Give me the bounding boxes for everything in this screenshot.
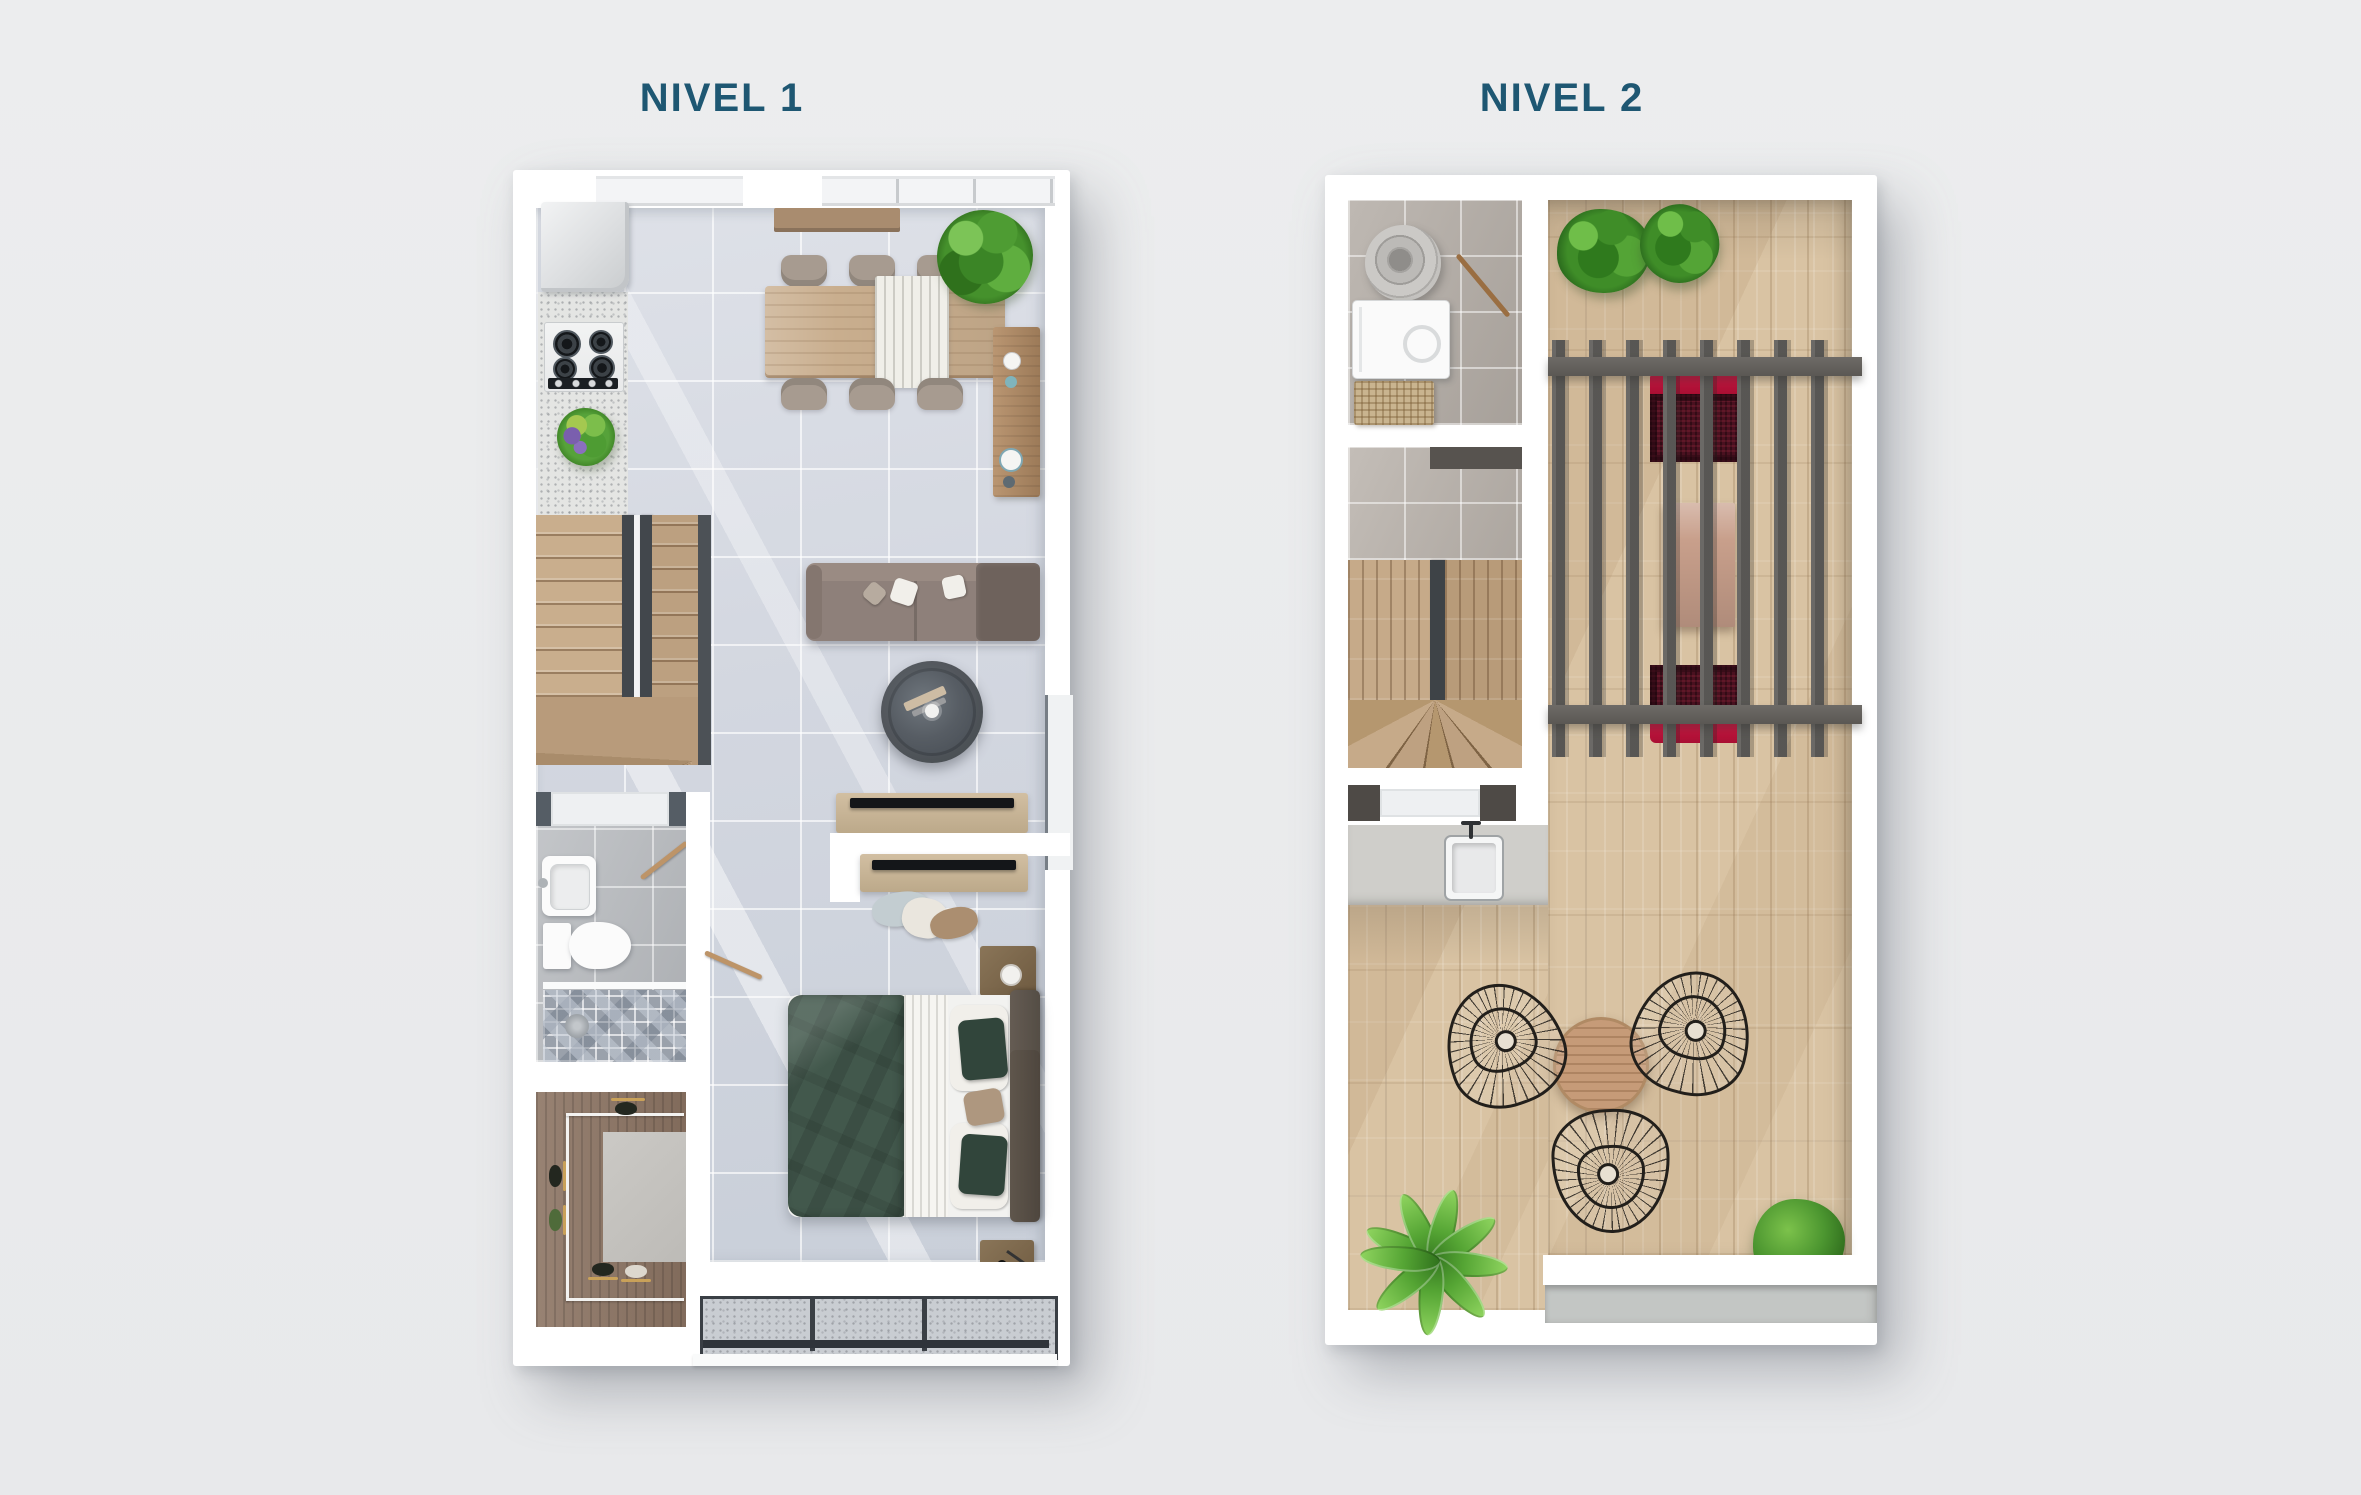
pergola-beam xyxy=(1548,357,1862,376)
bar-sink xyxy=(1444,835,1504,901)
faucet-icon xyxy=(1469,823,1473,839)
closet-rail xyxy=(566,1298,684,1301)
sliding-door-track xyxy=(703,1340,1049,1348)
kitchen-plant xyxy=(557,408,615,466)
level1-floorplan xyxy=(513,170,1070,1366)
clothes-icon xyxy=(546,1161,566,1191)
closet-floor xyxy=(603,1132,686,1262)
dining-chair xyxy=(781,255,827,287)
level2-floorplan xyxy=(1325,175,1877,1345)
chair-hub-icon xyxy=(1492,1027,1520,1055)
dining-chair xyxy=(917,378,963,410)
bed-duvet xyxy=(788,995,906,1217)
table-runner xyxy=(875,276,949,388)
stove-knobs xyxy=(548,378,618,389)
parapet-ledge xyxy=(1545,1285,1877,1323)
clothes-icon xyxy=(611,1098,645,1120)
living-top-window xyxy=(822,176,1055,206)
water-heater-icon xyxy=(1365,225,1441,301)
plate-icon xyxy=(1003,352,1021,370)
stairs-flight-right xyxy=(652,515,698,697)
tray-icon xyxy=(1000,964,1022,986)
faucet-icon xyxy=(538,878,548,888)
door-post xyxy=(1480,785,1516,821)
tv-icon xyxy=(872,860,1016,870)
toilet-tank xyxy=(543,923,571,969)
clothes-icon xyxy=(546,1205,566,1235)
hall-wall xyxy=(686,792,710,1262)
stairs-winder xyxy=(1348,700,1522,768)
tv-icon xyxy=(850,798,1014,808)
door-post xyxy=(669,792,686,826)
dining-chair xyxy=(849,378,895,410)
pergola-slats xyxy=(1552,340,1844,757)
floorplan-canvas: NIVEL 1 NIVEL 2 xyxy=(0,0,2361,1495)
throw-pillow xyxy=(941,574,967,600)
cup-icon xyxy=(925,704,939,718)
living-bedroom-wall-step xyxy=(830,856,860,902)
accent-pillow xyxy=(958,1133,1008,1196)
faucet-handle-icon xyxy=(1461,821,1481,825)
level1-title: NIVEL 1 xyxy=(572,76,872,121)
chair-hub-icon xyxy=(1682,1017,1709,1044)
burner-icon xyxy=(553,330,581,358)
door-post xyxy=(536,792,551,826)
vanity-basin xyxy=(550,864,590,910)
washing-machine xyxy=(1352,300,1450,379)
bathroom-transom xyxy=(551,792,669,826)
laundry-basket xyxy=(1354,381,1434,425)
plate-icon xyxy=(1003,476,1015,488)
toilet-bowl xyxy=(569,922,631,969)
balcony-sill xyxy=(693,1354,1057,1366)
stair-door-transom xyxy=(1380,789,1480,817)
dining-chair xyxy=(781,378,827,410)
sofa-armrest xyxy=(806,565,822,639)
stairs-flight-right xyxy=(1445,560,1522,700)
plate-icon xyxy=(999,448,1023,472)
closet-rail xyxy=(566,1113,569,1301)
shower-glass xyxy=(543,982,686,989)
stairs-winder xyxy=(536,697,698,765)
corner-plant xyxy=(937,210,1033,304)
bed-sheet-fold xyxy=(904,995,948,1217)
balcony-floor xyxy=(700,1296,1058,1360)
stairs-flight-left xyxy=(536,515,622,697)
chair-hub-icon xyxy=(1597,1163,1620,1186)
bath-closet-wall xyxy=(536,1062,686,1092)
bedroom-bottom-wall xyxy=(700,1262,1070,1296)
shower-drain-icon xyxy=(565,1014,589,1038)
fridge xyxy=(541,202,629,292)
accent-pillow xyxy=(957,1017,1008,1081)
hedge-plant xyxy=(1557,209,1651,293)
living-bedroom-wall xyxy=(830,833,1070,856)
stairs-flight-left xyxy=(1348,560,1430,700)
entry-console xyxy=(774,208,900,232)
door-post xyxy=(1348,785,1380,821)
stair-overhead-beam xyxy=(1430,447,1522,469)
level2-title: NIVEL 2 xyxy=(1412,76,1712,121)
headboard xyxy=(1010,990,1040,1222)
clothes-icon xyxy=(621,1262,651,1282)
terrace-parapet xyxy=(1543,1255,1877,1285)
plate-icon xyxy=(1005,376,1017,388)
clothes-icon xyxy=(588,1260,618,1280)
wire-chair xyxy=(1550,1107,1672,1235)
accent-pillow xyxy=(962,1087,1005,1127)
sofa-chaise xyxy=(976,563,1040,641)
banana-plant xyxy=(1358,1187,1510,1335)
burner-icon xyxy=(589,330,613,354)
stair-rail xyxy=(1430,560,1445,700)
stove-icon xyxy=(544,322,624,392)
stair-stringer xyxy=(698,515,711,765)
pergola-beam xyxy=(1548,705,1862,724)
